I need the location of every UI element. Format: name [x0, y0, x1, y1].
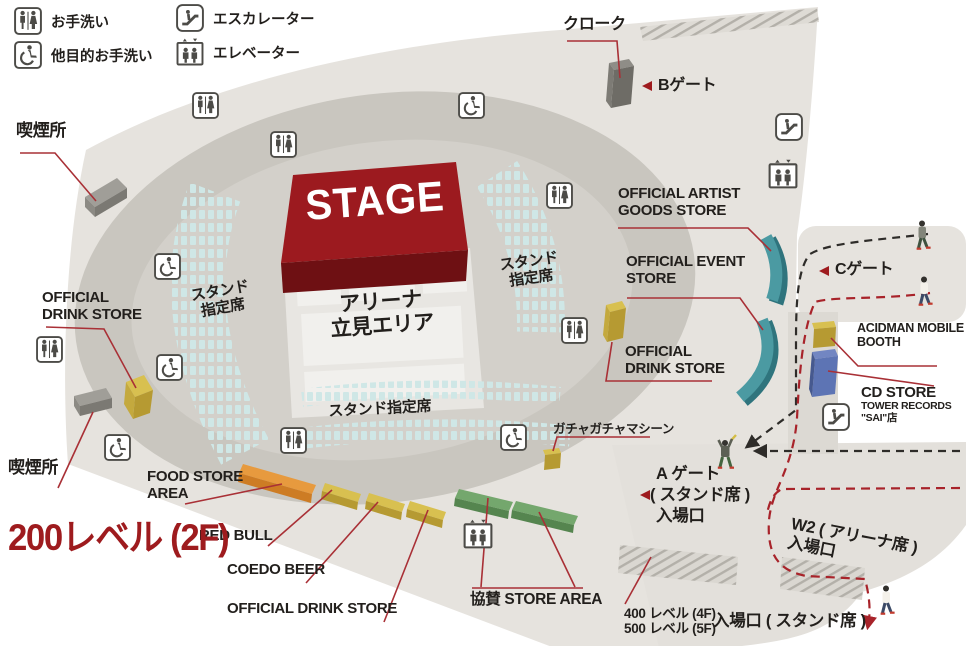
- gate-a-label: A ゲート ( スタンド席 ) 入場口: [656, 464, 750, 527]
- accessible-restroom-icon: [459, 93, 484, 118]
- restroom-icon: [14, 7, 42, 35]
- restroom-icon: [37, 337, 62, 362]
- restroom-icon: [281, 428, 306, 453]
- legend-label: エレベーター: [213, 42, 300, 63]
- legend-item-escalator: エスカレーター: [176, 4, 315, 32]
- legend-item-elevator: エレベーター: [176, 38, 300, 66]
- person-walking-3: [881, 586, 895, 615]
- escalator-icon: [776, 114, 802, 140]
- cloak-box: [606, 59, 634, 108]
- gate-c-label: Cゲート: [835, 261, 893, 279]
- coedo-beer-label: COEDO BEER: [227, 561, 325, 578]
- seat-block-bottom-lower: [287, 430, 570, 440]
- cd-store-label: CD STORE TOWER RECORDS "SAI"店: [861, 384, 951, 425]
- accessible-restroom-icon: [501, 425, 526, 450]
- smoking-area-upper-label: 喫煙所: [16, 121, 66, 140]
- official-artist-goods-store-label: OFFICIAL ARTIST GOODS STORE: [618, 185, 740, 219]
- elevator-icon: [176, 38, 204, 66]
- escalator-icon: [823, 404, 849, 430]
- escalator-icon: [176, 4, 204, 32]
- legend-label: エスカレーター: [213, 8, 315, 29]
- official-drink-store-bottom-label: OFFICIAL DRINK STORE: [227, 600, 397, 617]
- cd-store-box: [809, 349, 838, 397]
- official-event-store-label: OFFICIAL EVENT STORE: [626, 253, 745, 287]
- gate-b-label: Bゲート: [658, 77, 716, 95]
- restroom-icon: [547, 183, 572, 208]
- seat-block-bottom-upper: [302, 389, 560, 398]
- official-drink-store-left-label: OFFICIAL DRINK STORE: [42, 289, 142, 323]
- accessible-restroom-icon: [105, 435, 130, 460]
- food-store-area-label: FOOD STORE AREA: [147, 468, 243, 502]
- gacha-machine-label: ガチャガチャマシーン: [553, 422, 674, 436]
- legend-item-restroom: お手洗い: [14, 7, 109, 35]
- official-drink-store-right-label: OFFICIAL DRINK STORE: [625, 343, 725, 377]
- restroom-icon: [271, 132, 296, 157]
- elevator-icon: [465, 520, 492, 548]
- official-drink-store-right-box: [603, 301, 626, 342]
- accessible-restroom-icon: [157, 355, 182, 380]
- gacha-machine-box: [543, 448, 561, 470]
- legend-label: お手洗い: [51, 11, 109, 32]
- venue-map: お手洗い 他目的お手洗い エスカレーター エレベーター STAGE アリーナ 立…: [0, 0, 966, 646]
- accessible-restroom-icon: [155, 254, 180, 279]
- acidman-mobile-booth-label: ACIDMAN MOBILE BOOTH: [857, 321, 964, 350]
- acidman-booth-box: [812, 321, 836, 348]
- legend-label: 他目的お手洗い: [51, 45, 153, 66]
- restroom-icon: [562, 318, 587, 343]
- accessible-restroom-icon: [14, 41, 42, 69]
- level-title: 200レベル (2F): [8, 516, 228, 560]
- stand-entrance-label: 入場口 ( スタンド席 ): [713, 612, 866, 631]
- smoking-area-lower-label: 喫煙所: [8, 458, 58, 477]
- stage-label: STAGE: [292, 174, 458, 227]
- upper-level-entrance-label: 400 レベル (4F) 500 レベル (5F): [624, 606, 716, 637]
- elevator-icon: [770, 160, 797, 188]
- cloak-label: クローク: [563, 16, 626, 34]
- sponsor-store-area-label: 協賛 STORE AREA: [470, 591, 602, 609]
- restroom-icon: [193, 93, 218, 118]
- legend-item-accessible-restroom: 他目的お手洗い: [14, 41, 153, 69]
